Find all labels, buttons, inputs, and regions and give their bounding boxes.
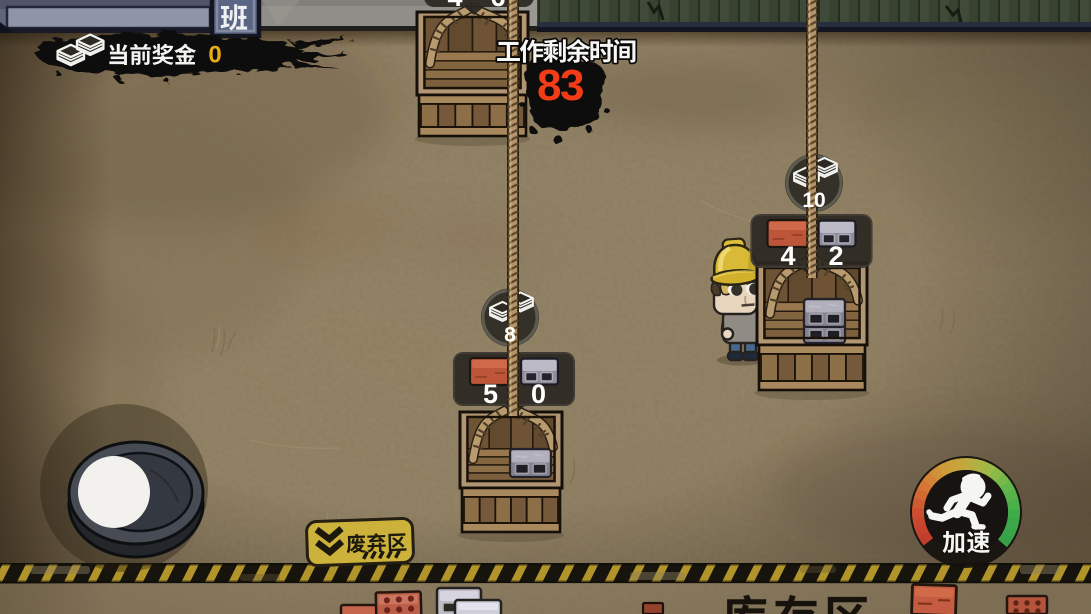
- svg-text:5: 5: [483, 379, 498, 409]
- svg-text:0: 0: [531, 379, 546, 409]
- svg-text:0: 0: [208, 42, 221, 69]
- svg-text:6: 6: [490, 0, 505, 12]
- svg-text:8: 8: [504, 324, 516, 347]
- svg-text:4: 4: [447, 0, 462, 12]
- svg-text:83: 83: [537, 61, 583, 110]
- svg-text:10: 10: [802, 189, 825, 212]
- svg-text:2: 2: [828, 241, 843, 271]
- svg-text:4: 4: [780, 241, 795, 271]
